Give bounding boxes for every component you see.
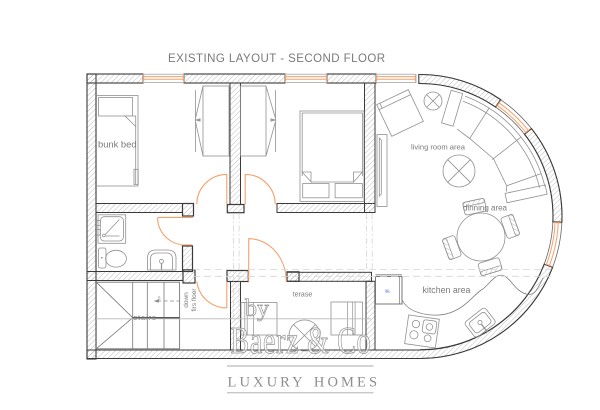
- svg-text:Baerz & Co: Baerz & Co: [231, 320, 371, 362]
- svg-text:u.: u.: [385, 289, 391, 295]
- svg-text:terase: terase: [293, 292, 313, 299]
- svg-text:by: by: [245, 296, 269, 322]
- svg-text:5: 5: [158, 296, 161, 301]
- svg-text:living room area: living room area: [411, 143, 466, 152]
- svg-text:dinning area: dinning area: [463, 204, 508, 213]
- svg-text:stairs: stairs: [133, 313, 156, 322]
- svg-text:firs floor: firs floor: [191, 288, 198, 312]
- svg-text:EXISTING LAYOUT - SECOND FLOOR: EXISTING LAYOUT - SECOND FLOOR: [168, 53, 386, 65]
- svg-text:bunk bed: bunk bed: [98, 139, 137, 150]
- svg-text:LUXURY HOMES: LUXURY HOMES: [228, 374, 381, 390]
- svg-text:down: down: [183, 292, 190, 308]
- svg-text:kitchen area: kitchen area: [423, 285, 471, 295]
